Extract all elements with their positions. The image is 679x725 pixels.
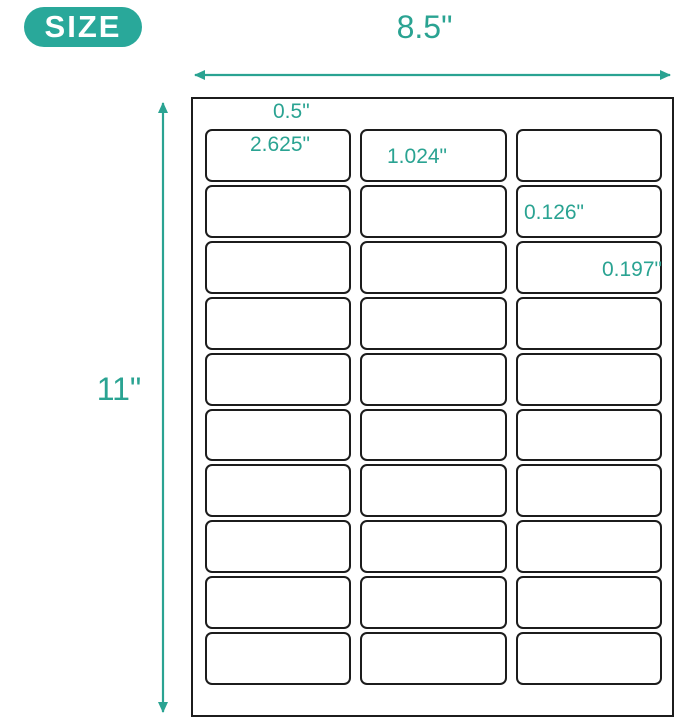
label-cell (516, 576, 662, 629)
label-cell (516, 353, 662, 406)
column-gap-label: 0.126" (524, 202, 584, 223)
label-cell (360, 241, 506, 294)
label-cell (205, 520, 351, 573)
label-cell (360, 464, 506, 517)
label-cell (360, 576, 506, 629)
label-cell (205, 632, 351, 685)
label-sheet-size-diagram: SIZE 8.5" 11" (0, 0, 679, 725)
label-cell (360, 409, 506, 462)
label-cell (360, 353, 506, 406)
label-grid (205, 129, 662, 685)
label-width-label: 2.625" (207, 134, 353, 155)
label-cell (360, 185, 506, 238)
label-cell (516, 464, 662, 517)
label-cell (205, 576, 351, 629)
top-margin-label: 0.5" (273, 101, 310, 122)
size-badge: SIZE (24, 7, 142, 47)
label-cell (516, 129, 662, 182)
label-cell (360, 632, 506, 685)
label-sheet (191, 97, 674, 717)
sheet-width-label: 8.5" (191, 11, 658, 43)
sheet-height-label: 11" (83, 373, 155, 405)
label-cell (205, 353, 351, 406)
label-cell (205, 464, 351, 517)
label-cell (205, 409, 351, 462)
label-cell (516, 632, 662, 685)
label-cell (516, 409, 662, 462)
label-cell (360, 297, 506, 350)
label-cell (516, 520, 662, 573)
label-height-label: 1.024" (387, 146, 447, 167)
label-cell (205, 241, 351, 294)
side-margin-label: 0.197" (540, 259, 662, 280)
label-cell (516, 297, 662, 350)
label-cell (360, 520, 506, 573)
label-cell (205, 297, 351, 350)
label-cell (205, 185, 351, 238)
